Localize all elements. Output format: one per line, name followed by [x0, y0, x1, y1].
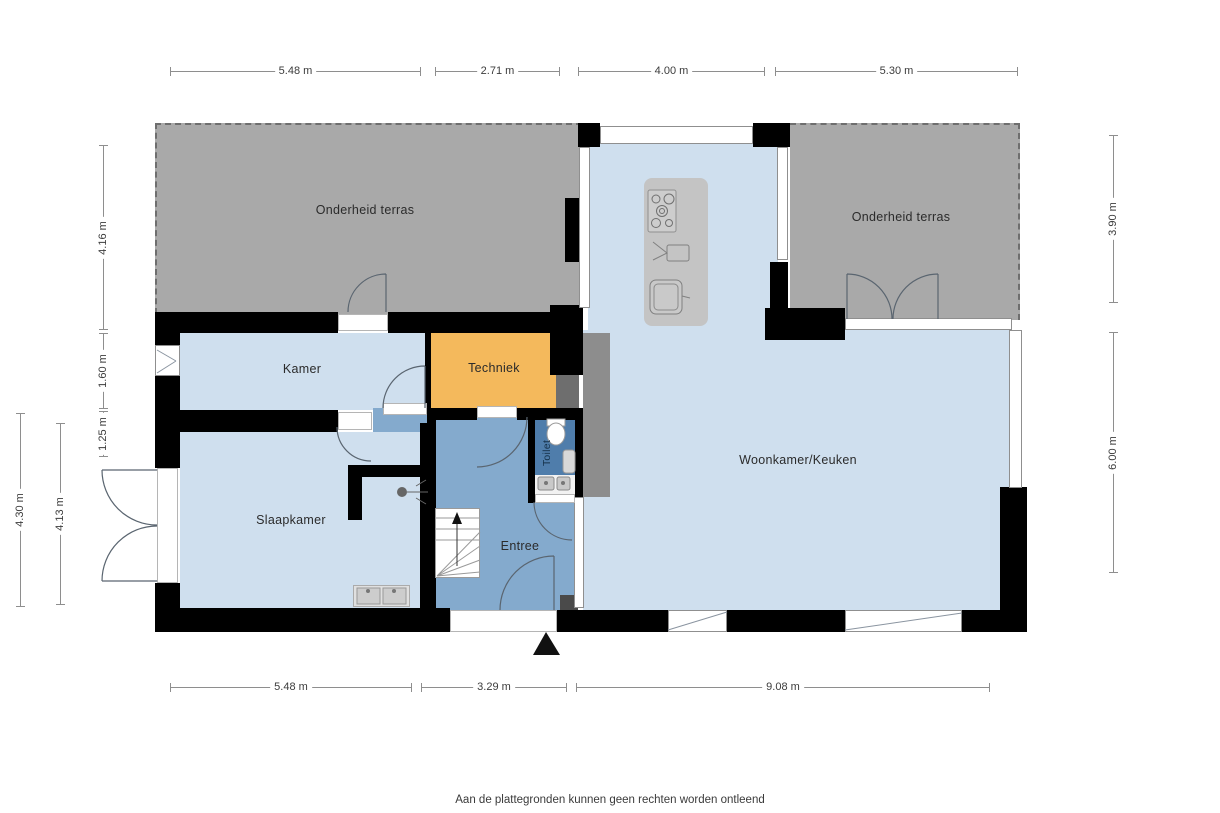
- wall: [155, 608, 450, 632]
- washbasin-counter: [353, 585, 410, 607]
- door-opening: [477, 406, 517, 418]
- techniek-label: Techniek: [468, 361, 520, 375]
- wall: [765, 308, 845, 340]
- woonkamer-keuken: [583, 330, 1012, 612]
- dim-left-2: 1.60 m: [97, 333, 109, 409]
- dim-top-1: 5.48 m: [170, 65, 421, 77]
- wall: [155, 312, 338, 333]
- door-opening: [338, 412, 372, 430]
- dim-left-outer-2: 4.13 m: [54, 423, 66, 605]
- glass-partition: [574, 497, 584, 608]
- wall: [528, 418, 535, 503]
- window: [1009, 330, 1022, 488]
- door-opening: [383, 403, 427, 415]
- front-door-opening: [450, 610, 557, 632]
- dim-top-3: 4.00 m: [578, 65, 765, 77]
- slaapkamer-label: Slaapkamer: [256, 513, 326, 527]
- window: [777, 147, 788, 260]
- wall: [420, 423, 436, 608]
- wall: [388, 312, 565, 333]
- staircase: [435, 508, 480, 578]
- wall: [575, 408, 583, 503]
- dim-bottom-3: 9.08 m: [576, 681, 990, 693]
- window: [155, 345, 180, 376]
- wall: [727, 610, 845, 632]
- door-opening: [535, 494, 575, 503]
- dim-bottom-1: 5.48 m: [170, 681, 412, 693]
- kamer-label: Kamer: [283, 362, 321, 376]
- wall: [550, 305, 583, 375]
- dim-right-2: 6.00 m: [1107, 332, 1119, 573]
- dim-bottom-2: 3.29 m: [421, 681, 567, 693]
- wall: [557, 610, 668, 632]
- dim-top-4: 5.30 m: [775, 65, 1018, 77]
- wall-post: [753, 123, 790, 147]
- window: [668, 610, 727, 632]
- terrace-left-label: Onderheid terras: [316, 203, 415, 217]
- toilet-label: Toilet: [541, 440, 553, 466]
- wall: [1000, 487, 1027, 632]
- shaft: [583, 333, 610, 497]
- dim-left-1: 4.16 m: [97, 145, 109, 330]
- window: [600, 126, 753, 144]
- door-opening: [157, 468, 178, 583]
- wall: [436, 408, 477, 420]
- kitchen-island: [644, 178, 708, 326]
- terrace-right-label: Onderheid terras: [852, 210, 951, 224]
- window: [845, 318, 1012, 330]
- disclaimer-text: Aan de plattegronden kunnen geen rechten…: [455, 794, 764, 806]
- entree-label: Entree: [501, 539, 540, 553]
- wall: [155, 410, 338, 432]
- woonkamer-label: Woonkamer/Keuken: [739, 453, 857, 467]
- dim-right-1: 3.90 m: [1107, 135, 1119, 303]
- entrance-arrow-icon: [533, 632, 560, 655]
- window: [845, 610, 962, 632]
- door-opening: [338, 314, 388, 331]
- wall: [425, 333, 431, 410]
- wall: [155, 312, 180, 345]
- wall-post: [578, 123, 600, 147]
- wall-shower: [348, 465, 362, 520]
- duct-block: [556, 375, 579, 410]
- dim-left-outer-1: 4.30 m: [14, 413, 26, 607]
- terrace-left: [155, 123, 582, 314]
- dim-left-3: 1.25 m: [97, 411, 109, 457]
- floor-plan: Onderheid terras Onderheid terras Kamer …: [0, 0, 1220, 813]
- dim-top-2: 2.71 m: [435, 65, 560, 77]
- wall-pier: [565, 198, 579, 262]
- window: [579, 147, 590, 308]
